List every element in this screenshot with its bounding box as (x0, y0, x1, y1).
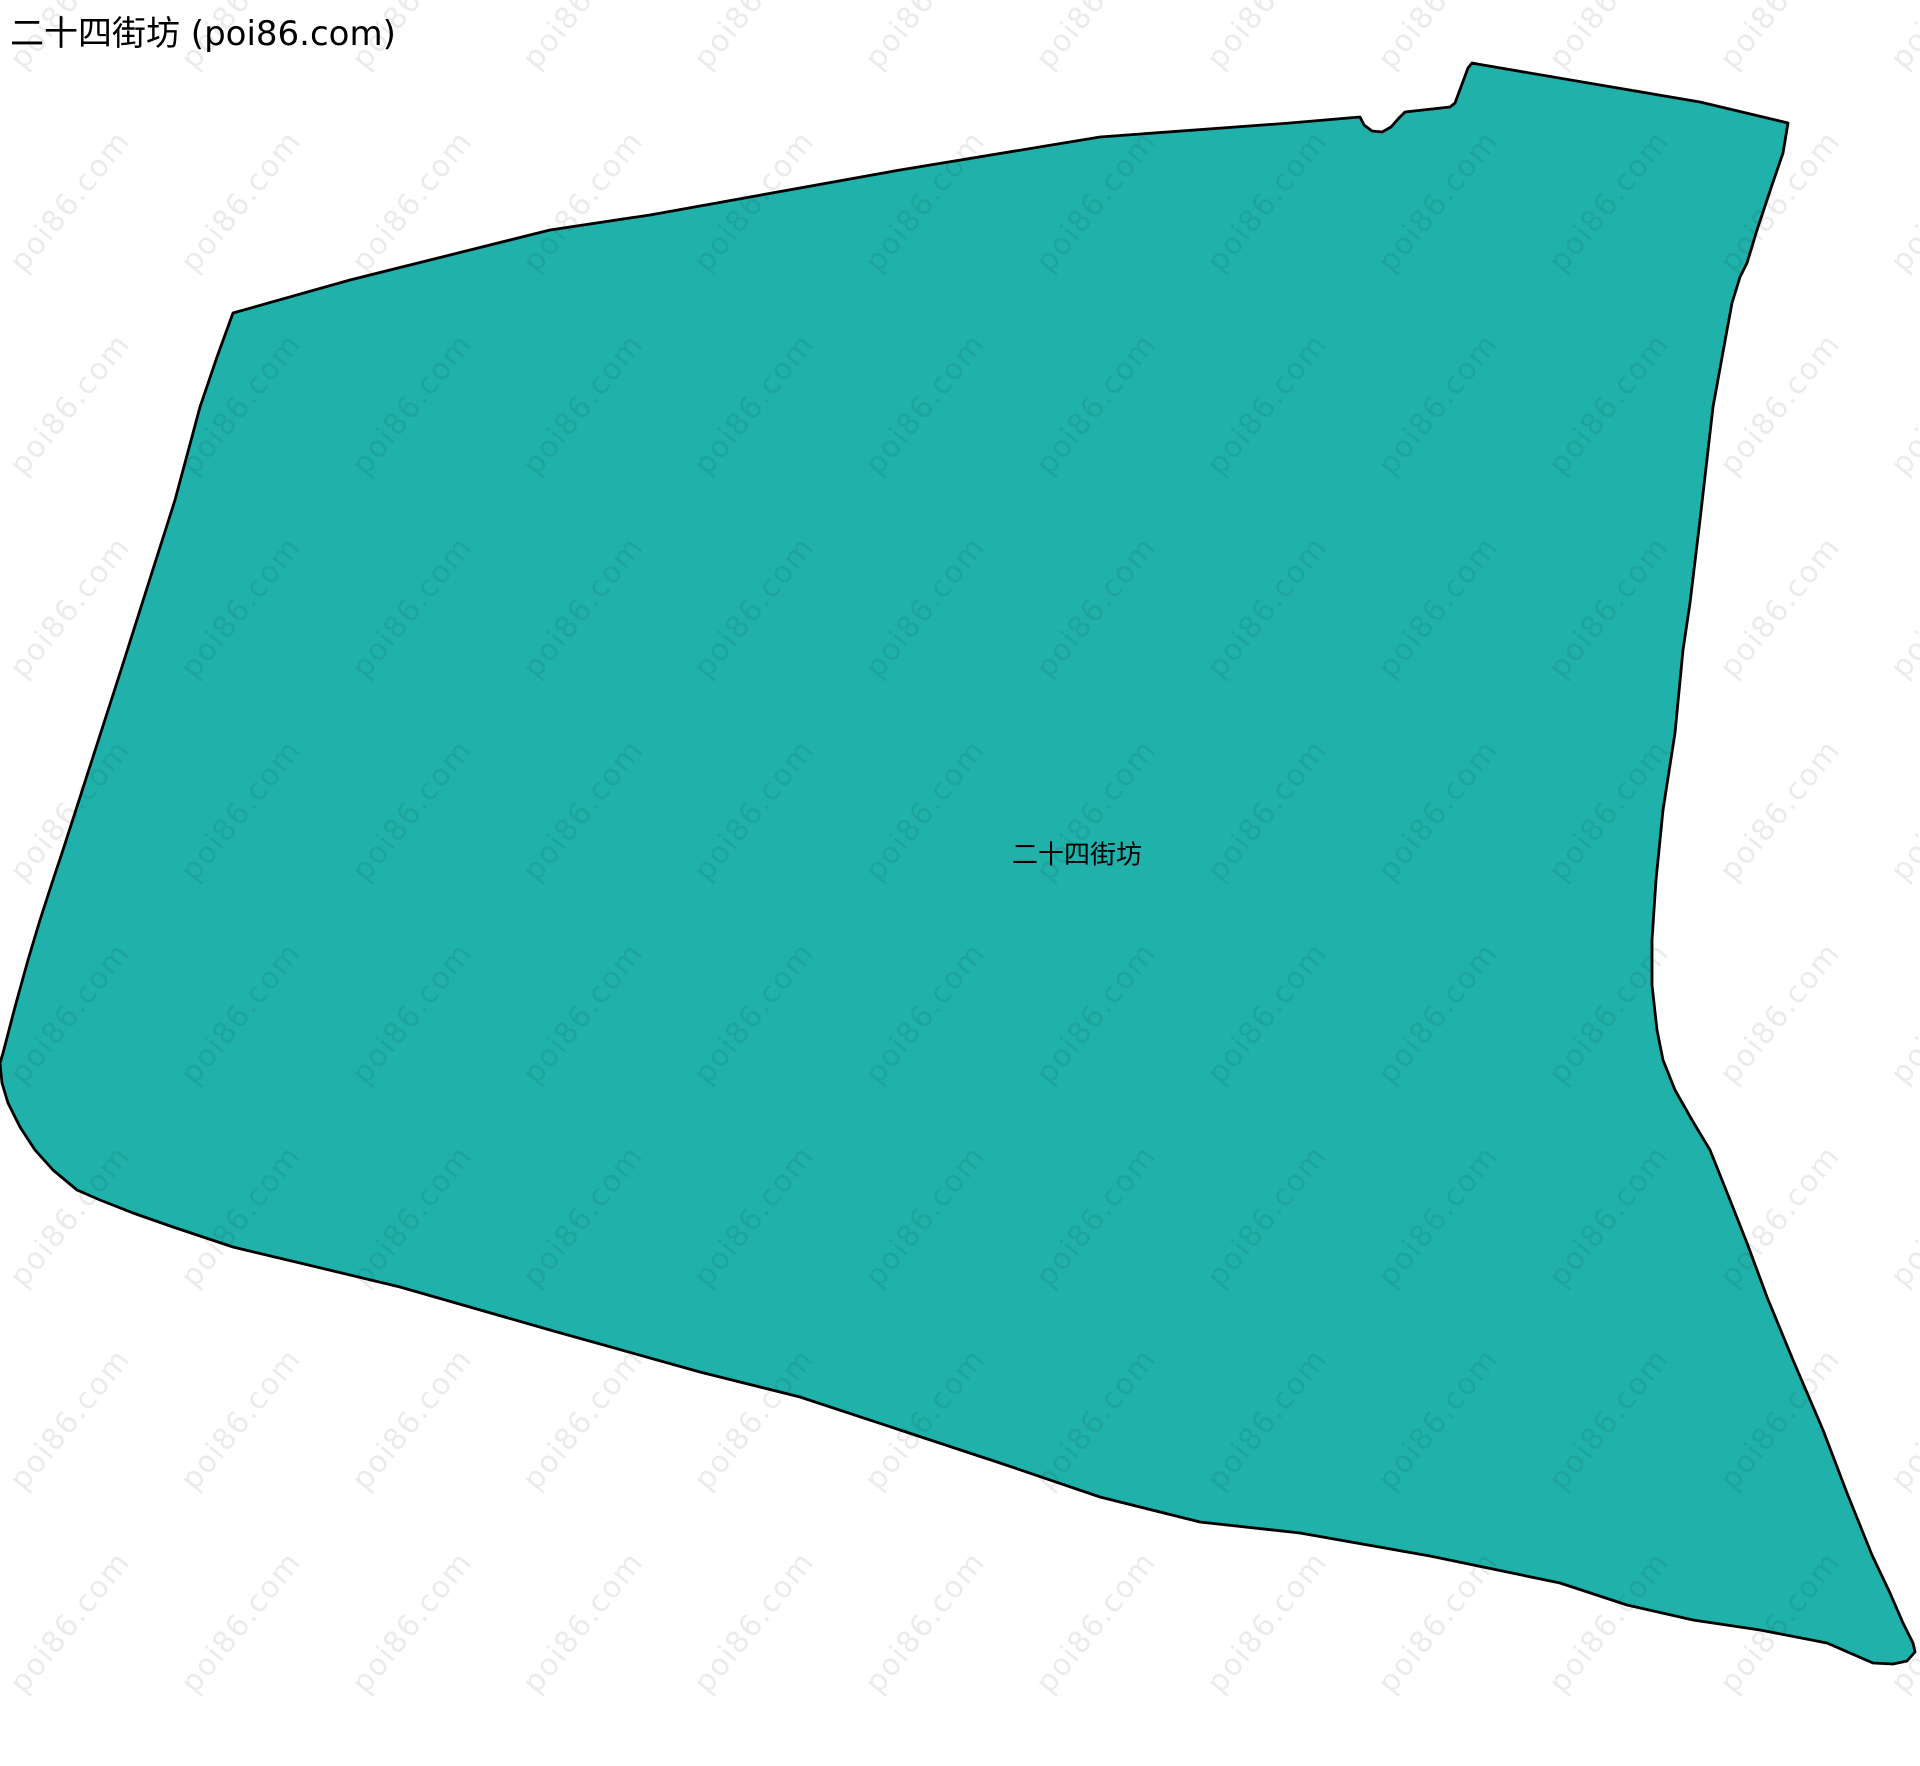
page-title: 二十四街坊 (poi86.com) (10, 6, 396, 55)
region-polygon (0, 63, 1915, 1664)
region-label: 二十四街坊 (1012, 835, 1142, 872)
region-map-svg (0, 0, 1920, 1766)
map-canvas: poi86.compoi86.compoi86.compoi86.compoi8… (0, 0, 1920, 1766)
